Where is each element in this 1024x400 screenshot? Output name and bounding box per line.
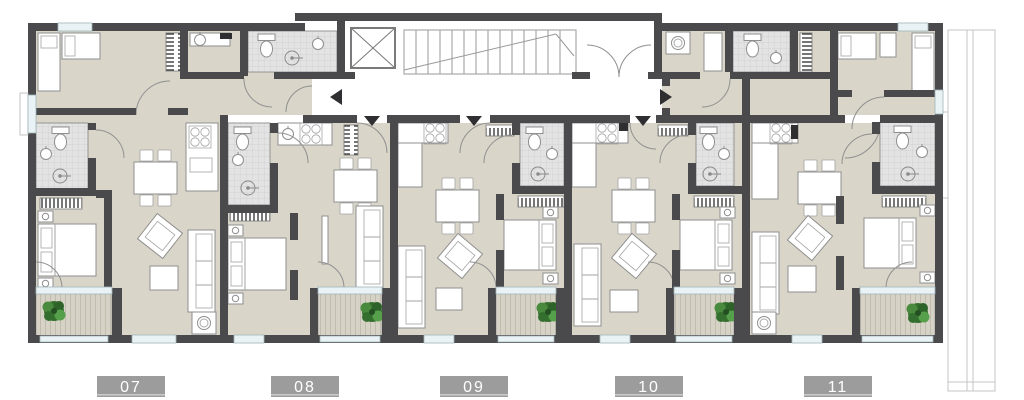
wall-segment: [88, 123, 96, 130]
wall-segment: [872, 122, 880, 134]
nightstand: [720, 207, 735, 218]
balcony-door-band: [674, 287, 734, 294]
range-hood: [791, 125, 798, 139]
unit-label-07: 07: [97, 376, 165, 397]
unit-number: 11: [828, 379, 849, 396]
wall-segment: [512, 123, 520, 135]
kitchen-sink: [190, 158, 212, 172]
unit-label-08: 08: [271, 376, 339, 397]
nightstand: [543, 207, 558, 218]
window: [28, 95, 36, 133]
wall-segment: [790, 31, 798, 72]
terrace-outline-right: [943, 30, 995, 391]
wall-segment: [662, 115, 845, 123]
single-bed: [838, 33, 876, 59]
wall-segment: [935, 23, 943, 343]
wall-segment: [852, 288, 860, 343]
wardrobe: [40, 198, 82, 209]
wall-segment: [496, 194, 504, 220]
wardrobe: [166, 33, 182, 71]
nightstand: [228, 293, 243, 304]
wall-segment: [274, 72, 337, 79]
wall-segment: [666, 288, 674, 343]
wall-segment: [96, 190, 112, 198]
wall-segment: [270, 123, 278, 133]
stairs-icon: [404, 30, 576, 74]
window: [424, 335, 454, 343]
wall-segment: [688, 123, 696, 135]
window: [935, 90, 943, 114]
wall-segment: [382, 288, 390, 343]
nightstand: [920, 205, 935, 216]
window: [600, 335, 630, 343]
unit-number: 09: [463, 379, 485, 396]
wall-segment: [180, 72, 244, 79]
wall-segment: [337, 13, 345, 79]
wall-segment: [295, 13, 662, 21]
wardrobe: [486, 125, 514, 136]
wall-segment: [836, 256, 844, 290]
wall-segment: [390, 115, 398, 335]
wall-segment: [290, 213, 298, 240]
wall-segment: [112, 288, 122, 343]
window: [58, 23, 92, 31]
corridor-floor: [312, 79, 662, 115]
wall-segment: [490, 115, 630, 123]
coffee-table: [610, 290, 638, 312]
unit-label-11: 11: [804, 376, 872, 397]
wall-segment: [688, 186, 742, 194]
single-bed: [38, 33, 60, 91]
wall-segment: [270, 163, 278, 205]
kitchen-counter: [398, 143, 422, 187]
wall-segment: [836, 196, 844, 224]
wardrobe: [658, 125, 688, 136]
balcony-door-band: [496, 287, 556, 294]
wall-segment: [656, 115, 662, 123]
balcony-railing: [498, 336, 554, 342]
range-hood: [619, 123, 628, 131]
nightstand: [38, 211, 53, 222]
balcony-railing: [320, 336, 380, 342]
balcony-door-band: [860, 287, 935, 294]
wall-segment: [36, 108, 136, 115]
wall-segment: [240, 31, 248, 76]
wall-segment: [662, 72, 700, 79]
single-bed: [62, 33, 100, 59]
nightstand: [920, 272, 935, 283]
double-bed: [228, 238, 286, 290]
single-bed: [912, 33, 934, 91]
wall-segment: [742, 79, 750, 335]
wall-segment: [838, 90, 852, 97]
wall-segment: [872, 186, 935, 194]
nightstand: [720, 273, 735, 284]
washing-machine-icon: [192, 312, 216, 334]
sofa: [188, 230, 215, 312]
nightstand: [543, 273, 558, 284]
coffee-table: [150, 266, 178, 290]
wall-segment: [488, 288, 496, 343]
wall-segment: [564, 115, 572, 335]
wall-segment: [730, 72, 838, 79]
wall-segment: [880, 115, 943, 123]
plant-icon: [361, 302, 384, 322]
wall-segment: [872, 162, 880, 188]
balcony-door-band: [318, 287, 382, 294]
unit-number: 07: [120, 379, 142, 396]
wall-segment: [725, 31, 733, 72]
wardrobe: [800, 33, 812, 72]
wall-segment: [572, 72, 590, 79]
coffee-table: [436, 288, 462, 310]
washing-machine-icon: [666, 32, 690, 54]
wall-segment: [734, 288, 742, 343]
sofa: [752, 232, 779, 314]
unit-label-09: 09: [440, 376, 508, 397]
kitchen-counter: [752, 143, 778, 199]
unit-number: 10: [638, 379, 660, 396]
plant-icon: [907, 303, 930, 323]
wall-segment: [662, 79, 670, 86]
floor-plan-drawing: 07 08 09 10 11: [0, 0, 1024, 400]
wall-segment: [341, 72, 355, 79]
unit-number: 08: [294, 379, 316, 396]
sofa: [398, 246, 425, 328]
wardrobe: [694, 196, 734, 207]
sofa: [574, 244, 601, 326]
wall-segment: [180, 31, 188, 76]
shelf: [220, 33, 232, 39]
elevator-icon: [351, 28, 395, 68]
wall-segment: [220, 115, 228, 335]
storage-cabinet: [704, 33, 722, 71]
wall-segment: [168, 108, 188, 115]
window: [792, 335, 822, 343]
wall-segment: [303, 115, 357, 123]
double-bed: [504, 220, 556, 270]
window: [20, 93, 28, 135]
wall-segment: [104, 198, 112, 288]
balcony-railing: [676, 336, 732, 342]
window: [234, 335, 264, 343]
wall-segment: [672, 250, 680, 288]
unit-label-10: 10: [615, 376, 683, 397]
unit-labels: 07 08 09 10 11: [97, 376, 872, 397]
wall-segment: [28, 23, 36, 343]
wall-segment: [512, 186, 564, 194]
floor-plan-canvas: 07 08 09 10 11: [0, 0, 1024, 400]
window: [132, 335, 176, 343]
desk: [880, 33, 896, 57]
coffee-table: [788, 266, 816, 292]
wall-segment: [36, 188, 96, 196]
wall-segment: [672, 194, 680, 220]
wall-segment: [290, 270, 298, 300]
double-bed: [680, 220, 732, 270]
wall-segment: [88, 158, 96, 190]
balcony-railing: [862, 336, 933, 342]
wall-segment: [310, 288, 318, 343]
balcony-railing: [40, 336, 108, 342]
double-bed: [38, 224, 96, 276]
sofa: [356, 206, 383, 288]
kitchen-counter: [572, 143, 596, 187]
wardrobe: [518, 196, 564, 207]
wall-segment: [648, 72, 654, 79]
window: [898, 23, 928, 31]
wall-segment: [654, 13, 662, 79]
stair-core: [312, 21, 672, 126]
tv-board: [322, 216, 328, 264]
wall-segment: [884, 90, 943, 97]
wall-segment: [228, 205, 278, 213]
wall-segment: [830, 23, 838, 115]
wall-segment: [496, 250, 504, 288]
wardrobe: [882, 196, 926, 207]
wall-segment: [556, 288, 564, 343]
wardrobe: [344, 125, 358, 155]
double-bed: [864, 218, 916, 268]
plant-icon: [43, 301, 66, 321]
nightstand: [228, 225, 243, 236]
washing-machine-icon: [752, 312, 776, 334]
balcony-door-band: [36, 287, 112, 294]
